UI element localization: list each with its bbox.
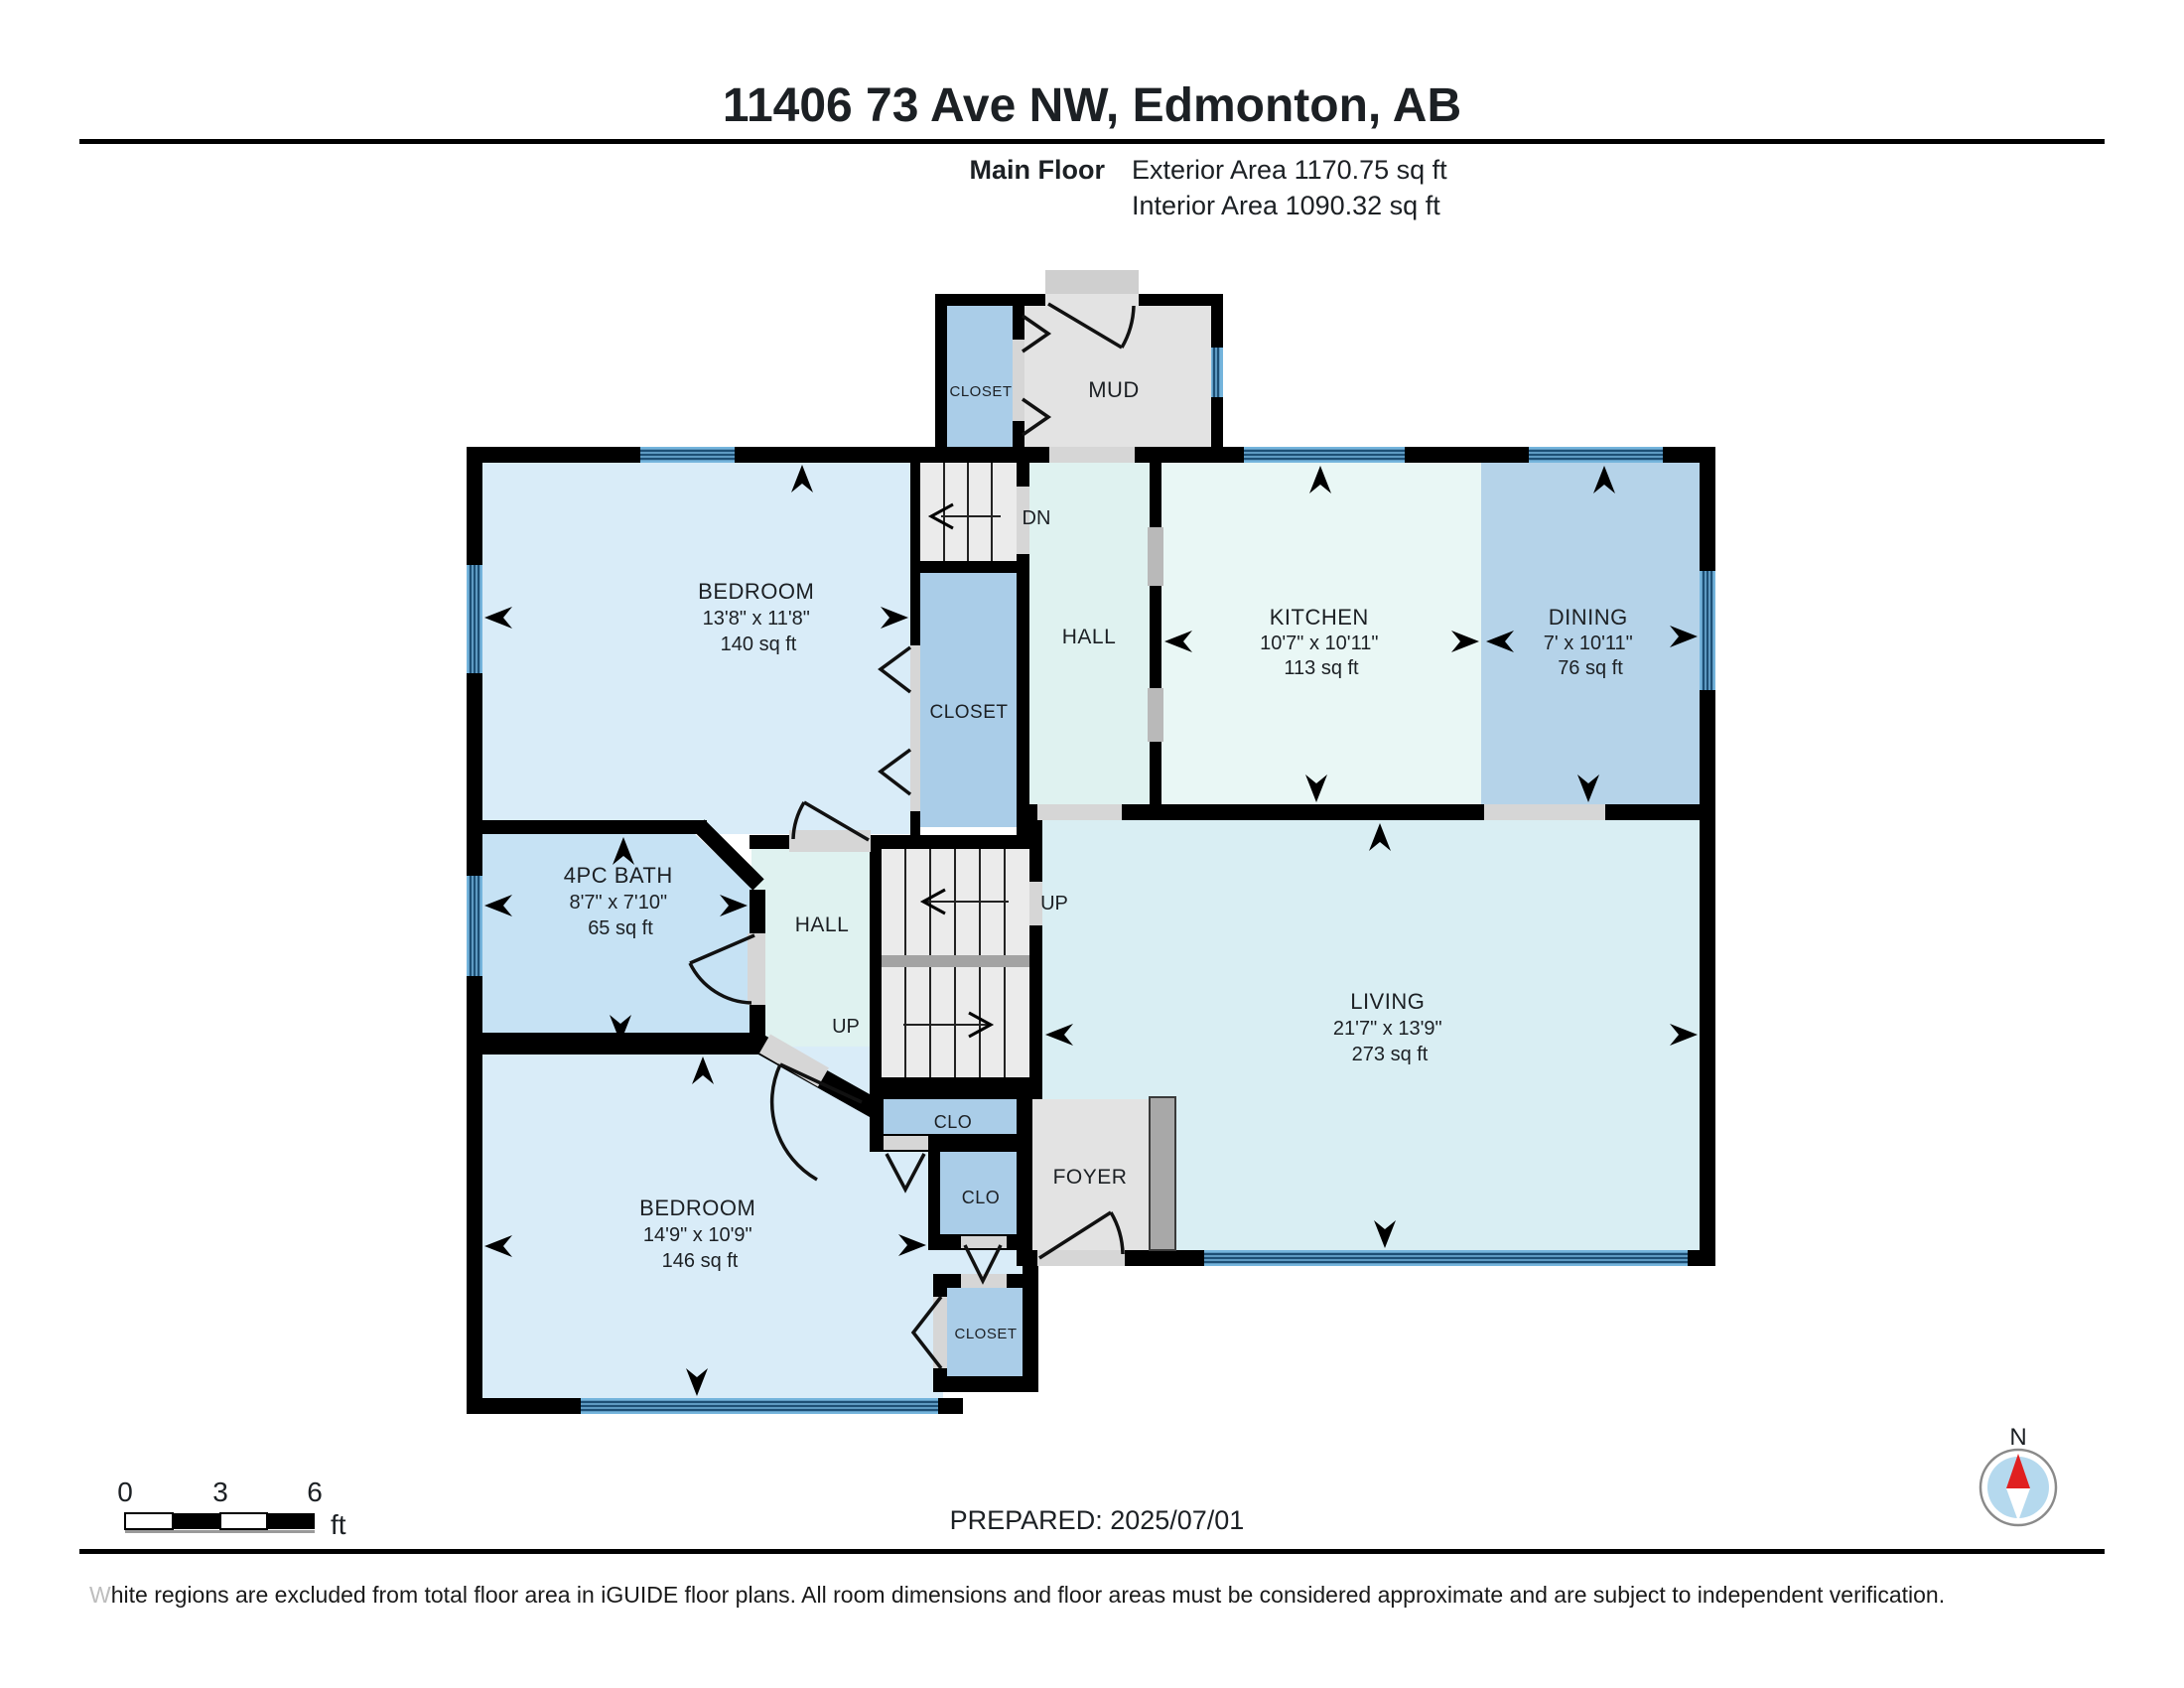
mud-closet-label: CLOSET [949, 383, 1012, 400]
window-bedroom1-top [640, 447, 735, 463]
scale-unit: ft [331, 1509, 346, 1540]
kitchen-wall-fixture-2 [1148, 688, 1163, 742]
window-living-bottom [1204, 1250, 1688, 1266]
scale-6: 6 [307, 1477, 323, 1507]
window-bath-left [467, 876, 482, 976]
mud-entry-opening [1045, 294, 1139, 306]
hall-closet-fill [920, 573, 1018, 827]
floor-label: Main Floor [970, 155, 1106, 185]
bath-door-opening [748, 933, 765, 1005]
scale-3: 3 [212, 1477, 228, 1507]
stairs-up-lower-label: UP [832, 1016, 860, 1038]
mud-closet-fill [947, 306, 1013, 447]
stairs-landing-divider [874, 955, 1036, 967]
footer-divider [79, 1549, 2105, 1554]
hall-closet-label: CLOSET [929, 702, 1008, 723]
compass-n-label: N [2009, 1424, 2026, 1451]
stairs-up-upper-label: UP [1040, 893, 1068, 914]
scale-0: 0 [117, 1477, 133, 1507]
window-bedroom1-left [467, 565, 482, 673]
mud-entry-step [1045, 270, 1139, 294]
bedroom2-closet-label: CLOSET [954, 1326, 1017, 1342]
title-divider [79, 139, 2105, 144]
hall-lower-label: HALL [795, 914, 850, 936]
hall-upper-label: HALL [1062, 626, 1117, 648]
clo1-opening [884, 1136, 928, 1150]
hall-closet-jamb [910, 645, 920, 811]
mud-hall-opening [1049, 447, 1135, 463]
exterior-area: Exterior Area 1170.75 sq ft [1132, 155, 1447, 185]
disclaimer: White regions are excluded from total fl… [89, 1582, 1945, 1608]
clo2-label: CLO [962, 1188, 1001, 1207]
mud-label: MUD [1088, 377, 1140, 402]
kitchen-wall-fixture-1 [1148, 527, 1163, 586]
clo1-label: CLO [934, 1112, 973, 1132]
dining-living-opening [1484, 804, 1605, 820]
window-bedroom2-bottom [581, 1398, 938, 1414]
header: 11406 73 Ave NW, Edmonton, AB Main Floor… [79, 79, 2105, 220]
bedroom1-fill [482, 463, 911, 834]
prepared-date: PREPARED: 2025/07/01 [950, 1505, 1245, 1535]
scale-bar: 0 3 6 ft [117, 1477, 346, 1540]
window-mud-right [1211, 348, 1223, 397]
foyer-label: FOYER [1053, 1166, 1128, 1189]
interior-area: Interior Area 1090.32 sq ft [1132, 191, 1440, 220]
floor-plan-page: 11406 73 Ave NW, Edmonton, AB Main Floor… [0, 0, 2184, 1688]
bedroom2-closet-opening [933, 1297, 947, 1368]
window-dining-top [1529, 447, 1663, 463]
nook-fill [940, 1250, 1023, 1276]
foyer-partition [1150, 1097, 1175, 1250]
page-title: 11406 73 Ave NW, Edmonton, AB [723, 79, 1461, 132]
window-dining-right [1700, 571, 1715, 690]
mud-closet-jamb [1013, 340, 1024, 421]
compass: N [1980, 1424, 2056, 1525]
window-kitchen-top [1244, 447, 1405, 463]
footer: White regions are excluded from total fl… [79, 1549, 2105, 1608]
hall-living-opening [1037, 804, 1122, 820]
stairs-dn-label: DN [1023, 507, 1051, 529]
